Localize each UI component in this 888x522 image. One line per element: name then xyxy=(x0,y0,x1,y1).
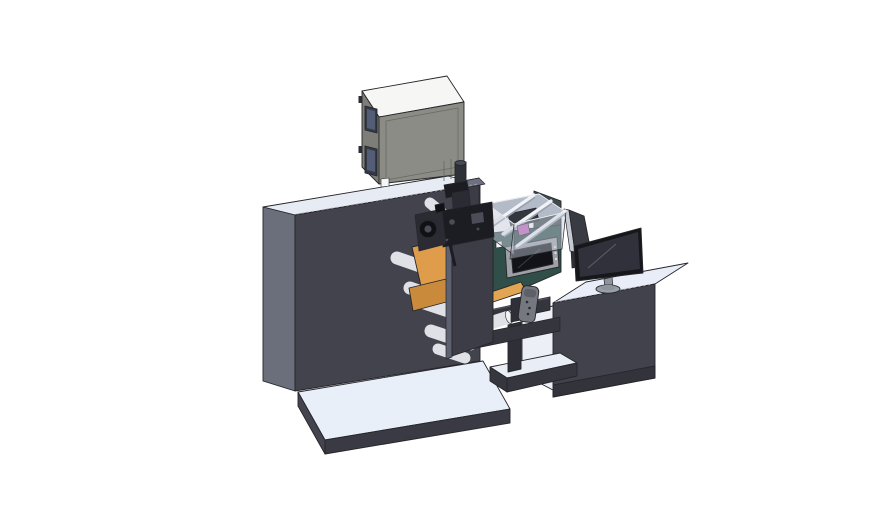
hmi-button-3 xyxy=(555,258,557,260)
cabinet-window-lower-glass xyxy=(367,149,375,172)
head-pin-3 xyxy=(477,228,480,231)
cabinet-label xyxy=(381,178,389,187)
pendant-key-3 xyxy=(527,313,530,316)
cabinet-hinge-lower xyxy=(359,146,363,153)
pendant-key-1 xyxy=(526,301,529,304)
head-small-cylinder xyxy=(435,203,445,213)
pendant-key-2 xyxy=(528,307,531,310)
hmi-button-2 xyxy=(554,252,556,254)
vent-cylinder-cap xyxy=(455,161,466,166)
head-facet xyxy=(471,212,484,224)
press-left-face xyxy=(263,207,295,391)
head-pin-1 xyxy=(449,219,455,225)
cad-scene xyxy=(0,0,888,522)
monitor-base-hub xyxy=(601,285,616,291)
cabinet-window-upper-glass xyxy=(367,109,375,130)
head-knob-hub xyxy=(424,225,431,232)
electrical-cabinet xyxy=(359,76,467,189)
cabinet-hinge-upper xyxy=(359,96,363,103)
